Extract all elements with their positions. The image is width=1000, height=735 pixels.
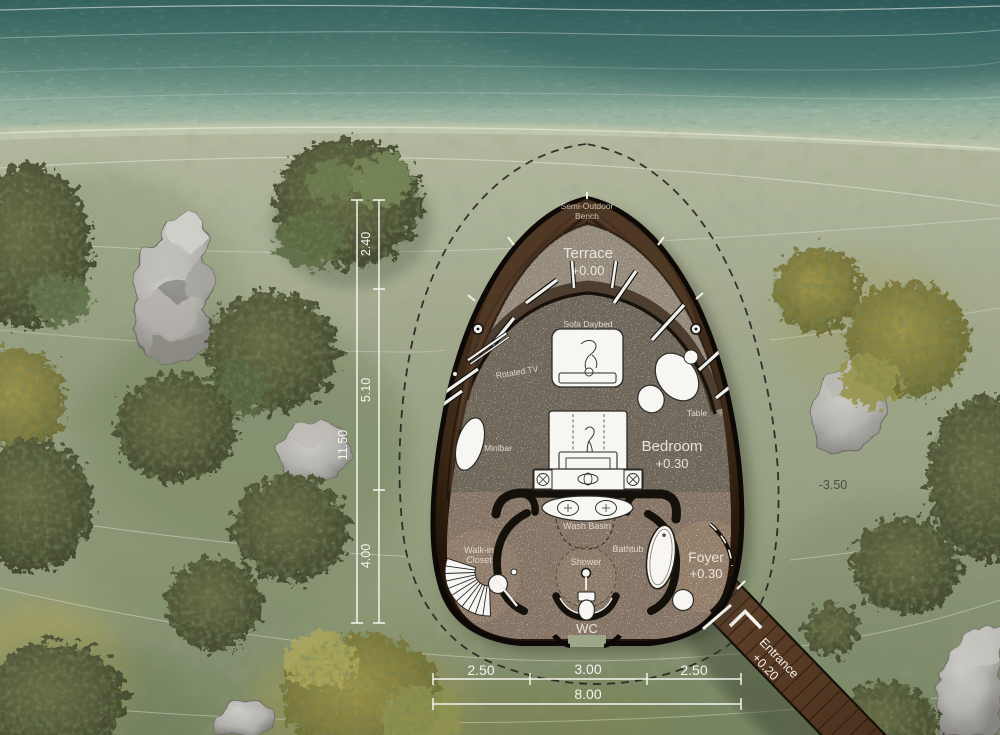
svg-text:3.00: 3.00 xyxy=(574,661,601,677)
svg-text:+0.30: +0.30 xyxy=(690,566,723,581)
svg-text:2.50: 2.50 xyxy=(680,662,707,678)
svg-text:Walk-in: Walk-in xyxy=(464,545,494,555)
svg-text:Bathtub: Bathtub xyxy=(612,544,643,554)
svg-text:11.50: 11.50 xyxy=(336,430,350,460)
svg-text:+0.30: +0.30 xyxy=(656,456,689,471)
svg-text:Sofa Daybed: Sofa Daybed xyxy=(563,319,612,329)
svg-text:2.50: 2.50 xyxy=(467,662,494,678)
svg-text:Foyer: Foyer xyxy=(688,549,724,565)
svg-text:Bedroom: Bedroom xyxy=(642,438,703,455)
svg-text:+0.00: +0.00 xyxy=(572,263,605,278)
svg-text:Closet: Closet xyxy=(466,555,492,565)
svg-text:4.00: 4.00 xyxy=(359,544,373,568)
svg-text:8.00: 8.00 xyxy=(574,686,601,702)
svg-text:Shower: Shower xyxy=(571,557,602,567)
svg-text:Table: Table xyxy=(687,408,708,418)
svg-text:5.10: 5.10 xyxy=(359,378,373,402)
svg-text:Terrace: Terrace xyxy=(563,245,613,262)
svg-text:Semi-Outdoor: Semi-Outdoor xyxy=(561,201,614,211)
svg-text:Wash Basin: Wash Basin xyxy=(563,521,611,531)
svg-text:Minibar: Minibar xyxy=(484,443,512,453)
svg-text:-3.50: -3.50 xyxy=(819,478,848,492)
svg-text:WC: WC xyxy=(576,621,598,636)
svg-text:Bench: Bench xyxy=(575,211,599,221)
svg-text:2.40: 2.40 xyxy=(359,232,373,256)
